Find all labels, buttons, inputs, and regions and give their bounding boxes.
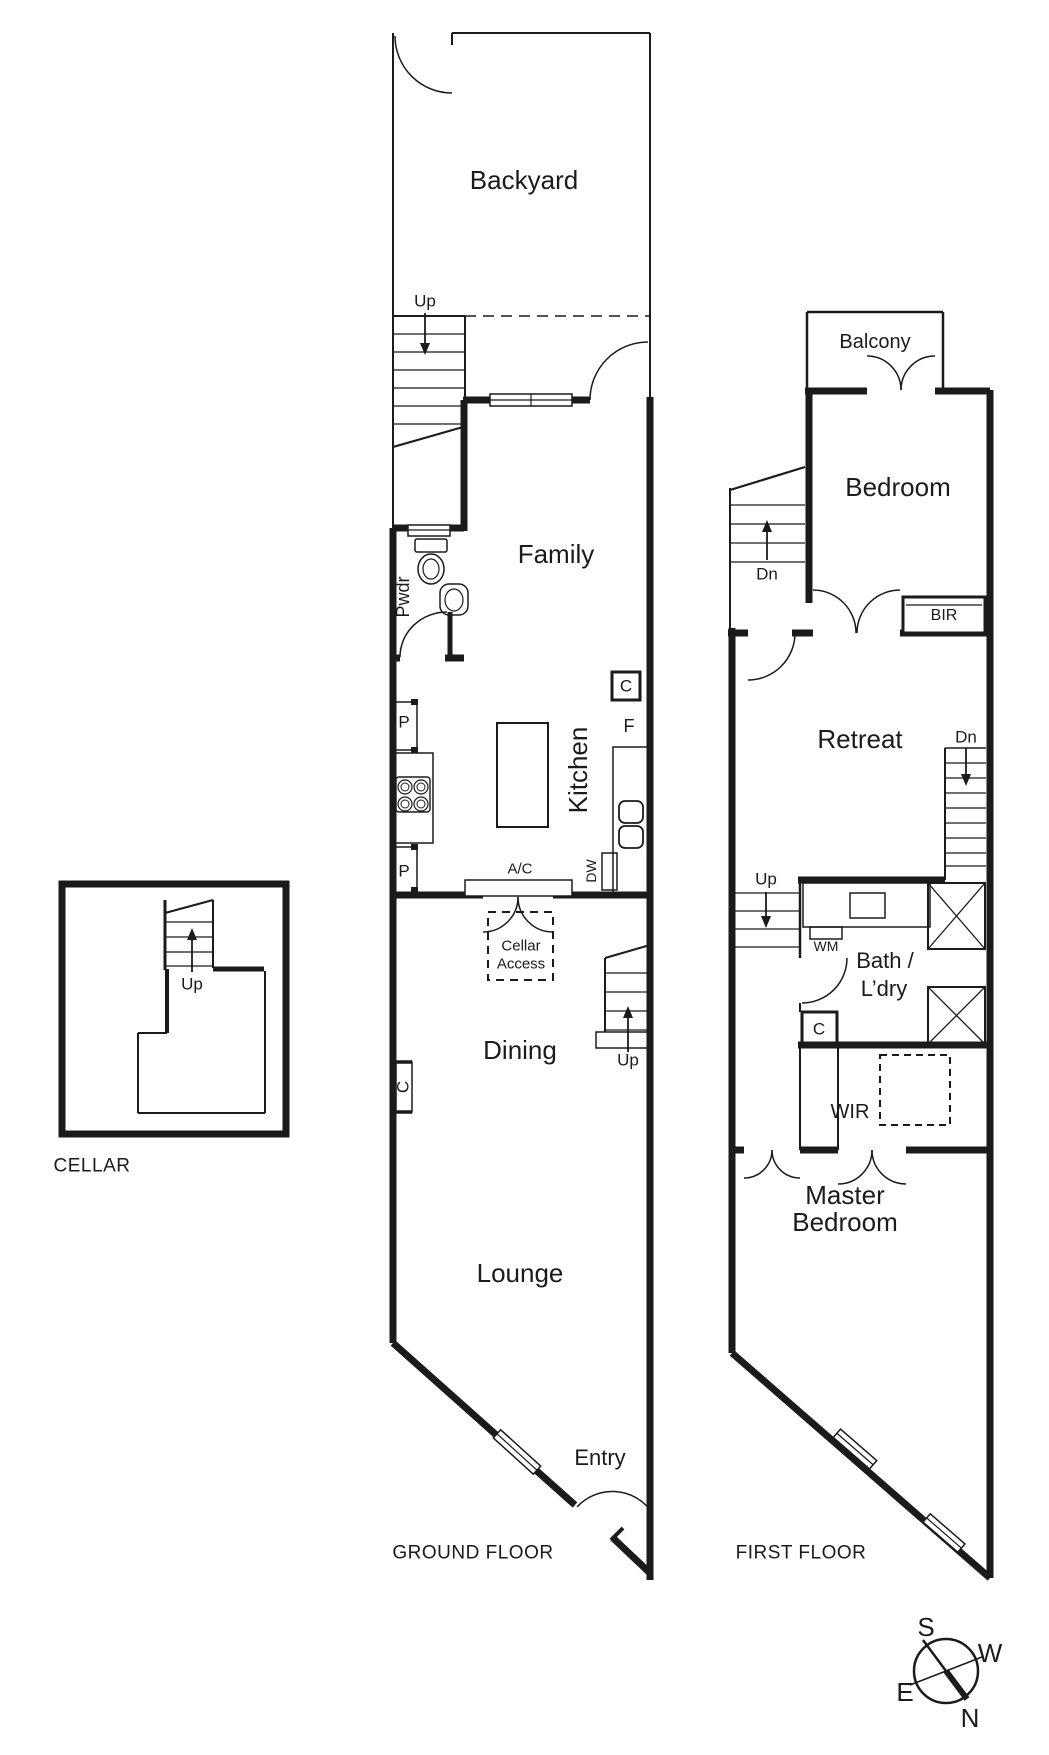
balcony-door-arc — [901, 356, 935, 390]
family-window — [490, 394, 572, 406]
title-first-floor: FIRST FLOOR — [736, 1544, 867, 1563]
compass-north: N — [961, 1705, 980, 1731]
label-pantry-lower: P — [398, 863, 409, 880]
first-stair-attic — [735, 883, 800, 952]
first-stair-retreat — [945, 748, 986, 880]
kitchen-counter — [613, 747, 650, 895]
basin-icon — [850, 893, 885, 918]
landing-door-arc — [748, 633, 795, 680]
compass-west: W — [978, 1640, 1003, 1666]
cooktop-icon — [396, 777, 430, 812]
room-label-retreat: Retreat — [817, 726, 902, 752]
arrow-down-icon — [761, 916, 771, 928]
label-bir: BIR — [931, 608, 958, 624]
floorplan-page: Backyard Up Family Pwdr P P Kitchen C F … — [0, 0, 1049, 1755]
arrow-up-icon — [623, 1006, 633, 1018]
room-label-bath-1: Bath / — [856, 950, 913, 972]
arrow-down-icon — [961, 774, 971, 786]
room-label-kitchen: Kitchen — [565, 727, 591, 814]
dishwasher-box — [602, 853, 617, 890]
room-label-backyard: Backyard — [470, 167, 578, 193]
wir-hatch — [880, 1055, 950, 1125]
label-fridge: F — [624, 717, 635, 735]
room-label-bath-2: L’dry — [861, 978, 907, 1000]
stair-label-dn-bedroom: Dn — [756, 566, 778, 583]
stair-label-up-backyard: Up — [414, 293, 436, 310]
toilet-icon — [415, 539, 447, 552]
label-dishwasher: DW — [584, 859, 598, 882]
wir-area — [800, 1048, 950, 1150]
wir-door-arc — [872, 1150, 906, 1184]
label-cupboard-first: C — [813, 1021, 825, 1038]
label-cellar-access-1: Cellar — [501, 939, 540, 954]
room-label-bedroom: Bedroom — [845, 474, 951, 500]
stair-label-up-attic: Up — [755, 871, 777, 888]
lounge-window — [493, 1430, 540, 1474]
arrow-up-icon — [762, 520, 772, 532]
stair-label-up-dining: Up — [617, 1052, 639, 1069]
label-cellar-access-2: Access — [497, 957, 545, 972]
room-label-pwdr: Pwdr — [394, 576, 412, 617]
ground-stair-backyard — [393, 313, 465, 447]
master-window — [923, 1514, 965, 1552]
ground-floor-plan — [393, 33, 651, 1580]
wir-door-arc — [838, 1150, 872, 1184]
room-label-master-2: Bedroom — [792, 1209, 898, 1235]
first-stair-bedroom — [730, 467, 805, 628]
room-label-dining: Dining — [483, 1037, 557, 1063]
room-label-family: Family — [518, 541, 595, 567]
bedroom-door-arc — [857, 590, 900, 633]
title-ground-floor: GROUND FLOOR — [392, 1544, 553, 1563]
room-label-entry: Entry — [574, 1447, 625, 1469]
stair-label-up-cellar: Up — [181, 976, 203, 993]
sink-icon — [619, 801, 643, 823]
powder-door-arc — [400, 612, 447, 657]
room-label-wir: WIR — [831, 1102, 870, 1122]
label-cupboard-kitchen: C — [620, 678, 632, 695]
label-aircon: A/C — [507, 862, 532, 877]
cooktop-counter — [393, 753, 433, 843]
room-label-master-1: Master — [805, 1182, 884, 1208]
stair-label-dn-retreat: Dn — [955, 729, 977, 746]
vanity-counter — [803, 883, 930, 927]
arrow-down-icon — [420, 343, 430, 355]
compass-icon — [910, 1639, 982, 1703]
label-wm: WM — [814, 939, 839, 953]
compass-east: E — [896, 1679, 913, 1705]
family-door-arc — [590, 342, 648, 400]
bedroom-door-arc — [813, 590, 856, 633]
balcony-door-arc — [867, 356, 901, 390]
floorplan-drawing — [0, 0, 1049, 1755]
bath-door-arc — [802, 958, 847, 1003]
label-pantry-upper: P — [398, 714, 409, 731]
cellar-stair — [165, 900, 264, 972]
master-door-arc — [744, 1150, 772, 1178]
entry-door-arc — [577, 1491, 651, 1511]
kitchen-island — [497, 723, 548, 827]
label-cupboard-wall: C — [395, 1081, 412, 1093]
room-label-balcony: Balcony — [839, 332, 910, 352]
ground-stair-dining — [596, 945, 650, 1052]
backyard-gate-arc — [395, 36, 452, 93]
master-door-arc — [772, 1150, 800, 1178]
title-cellar: CELLAR — [54, 1157, 131, 1176]
arrow-up-icon — [187, 928, 197, 940]
aircon-box — [465, 880, 572, 896]
cellar-plan — [62, 884, 286, 1134]
compass-south: S — [917, 1614, 934, 1640]
room-label-lounge: Lounge — [477, 1260, 564, 1286]
